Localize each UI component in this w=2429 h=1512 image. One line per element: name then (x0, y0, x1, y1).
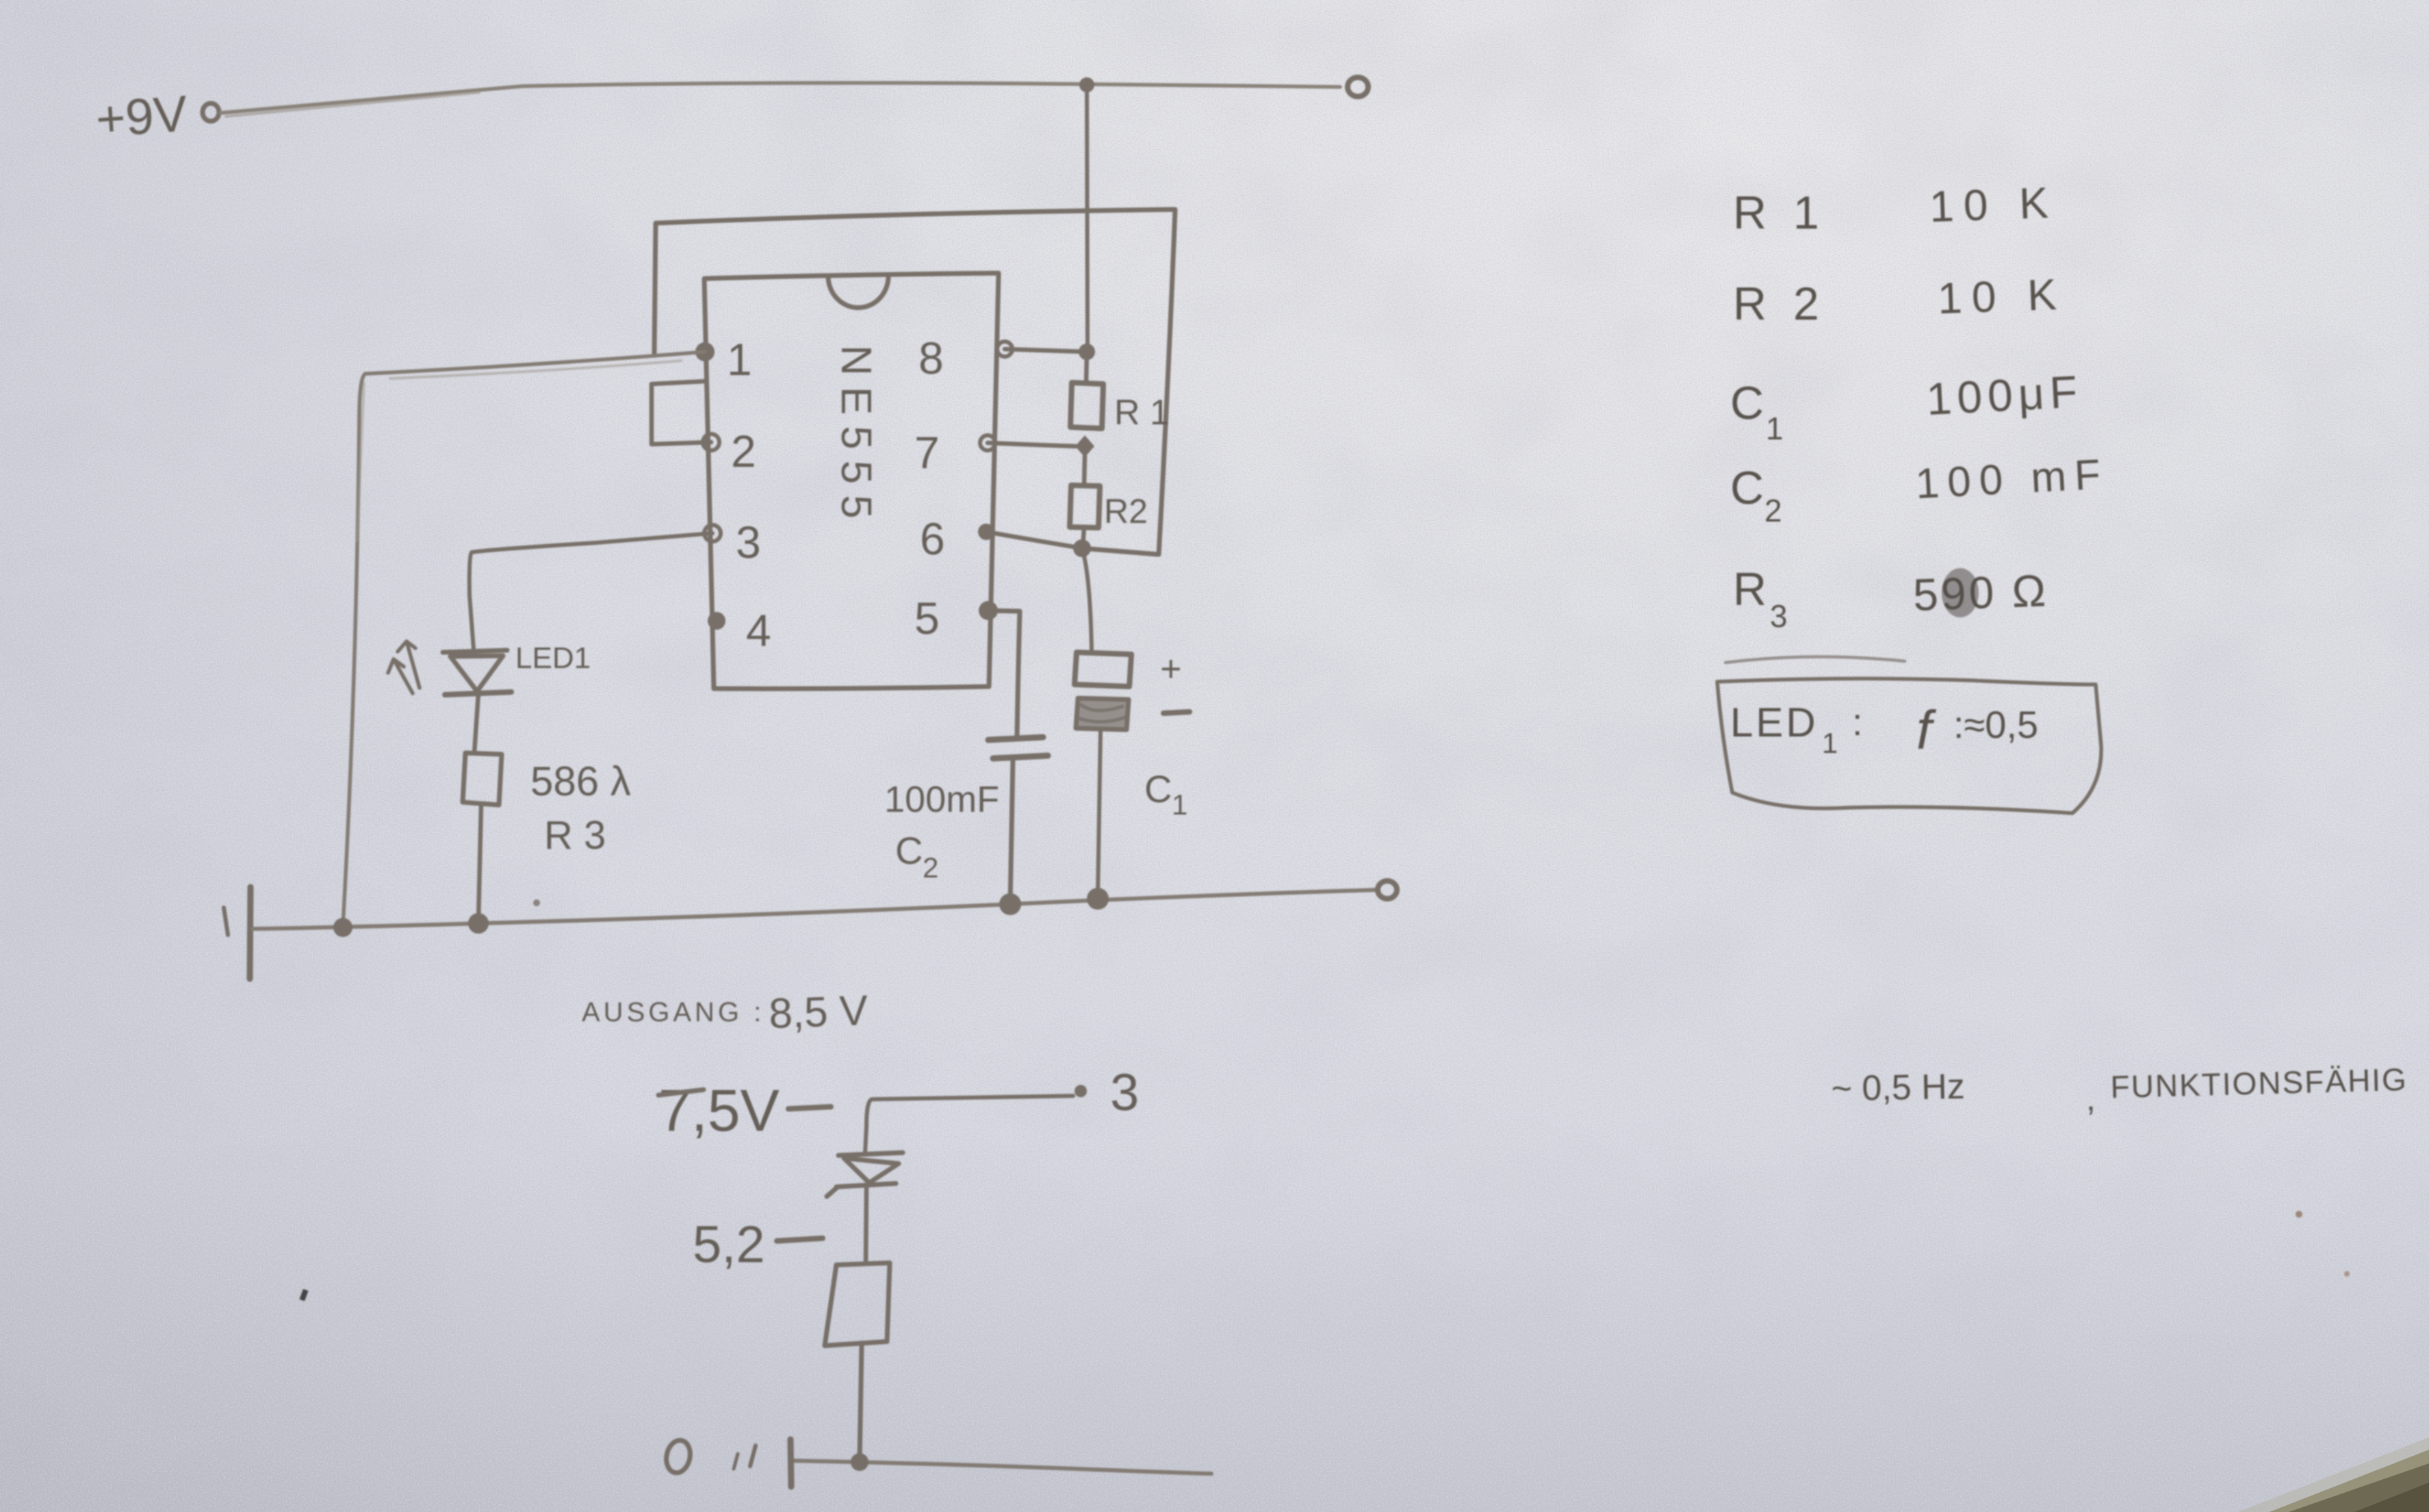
svg-text:3: 3 (1770, 598, 1788, 634)
svg-text::: : (1852, 700, 1863, 743)
svg-text:3: 3 (736, 517, 761, 567)
svg-text:R 3: R 3 (544, 813, 606, 858)
svg-text:+9V: +9V (94, 85, 190, 148)
svg-text:C: C (1730, 377, 1764, 429)
svg-text:R: R (1733, 563, 1766, 615)
svg-text:LED1: LED1 (515, 641, 591, 675)
svg-text:2: 2 (731, 426, 756, 476)
svg-text:7: 7 (914, 427, 940, 478)
svg-text:C: C (1730, 462, 1764, 514)
svg-text:R 1: R 1 (1733, 187, 1826, 239)
svg-text:AUSGANG :: AUSGANG : (582, 997, 764, 1027)
svg-text:100mF: 100mF (884, 779, 999, 820)
svg-text:5,2: 5,2 (693, 1216, 765, 1274)
svg-text:8: 8 (918, 333, 944, 383)
svg-text::≈0,5: :≈0,5 (1953, 703, 2038, 746)
svg-text:590 Ω: 590 Ω (1912, 565, 2049, 620)
svg-text:NE555: NE555 (832, 345, 879, 530)
svg-text:586 λ: 586 λ (530, 758, 631, 804)
svg-text:2: 2 (1764, 493, 1782, 528)
svg-text:3: 3 (1110, 1064, 1139, 1122)
svg-text:C: C (895, 829, 923, 872)
svg-text:5: 5 (914, 593, 940, 643)
svg-text:C: C (1144, 767, 1172, 810)
svg-text:~ 0,5 Hz: ~ 0,5 Hz (1831, 1067, 1965, 1109)
svg-text:8,5 V: 8,5 V (768, 987, 869, 1038)
svg-text:10 K: 10 K (1937, 269, 2067, 323)
svg-text:1: 1 (1172, 789, 1187, 821)
svg-text:1: 1 (727, 334, 752, 385)
svg-text:R 2: R 2 (1733, 278, 1826, 330)
svg-text:LED: LED (1730, 700, 1818, 745)
svg-text:+: + (1160, 648, 1182, 689)
svg-text:4: 4 (746, 605, 771, 656)
svg-text:1: 1 (1766, 411, 1784, 446)
svg-text:2: 2 (923, 851, 938, 884)
svg-text:100 mF: 100 mF (1914, 450, 2109, 508)
svg-text:1: 1 (1822, 727, 1838, 759)
svg-text:R 1: R 1 (1114, 393, 1170, 433)
svg-text:100μF: 100μF (1925, 366, 2084, 424)
svg-text:10 K: 10 K (1929, 177, 2059, 231)
svg-text:7,5V: 7,5V (658, 1078, 780, 1144)
svg-text:,: , (2086, 1079, 2096, 1118)
svg-text:6: 6 (920, 513, 945, 564)
svg-text:R2: R2 (1104, 492, 1148, 530)
